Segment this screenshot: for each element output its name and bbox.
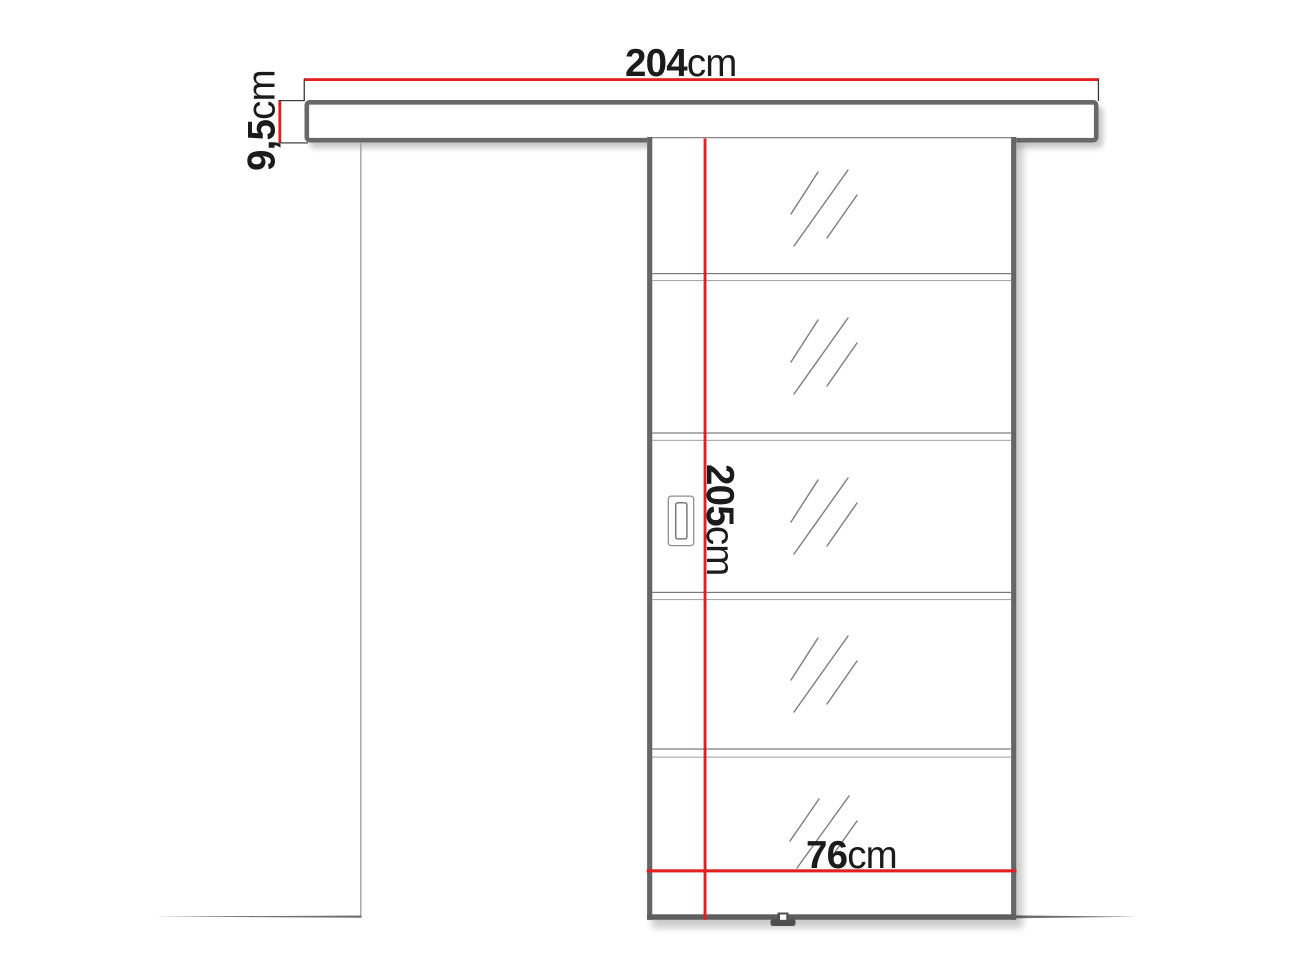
svg-text:205cm: 205cm	[698, 464, 741, 576]
svg-text:9,5cm: 9,5cm	[241, 70, 284, 171]
svg-text:204cm: 204cm	[625, 42, 737, 85]
svg-text:76cm: 76cm	[806, 834, 897, 877]
